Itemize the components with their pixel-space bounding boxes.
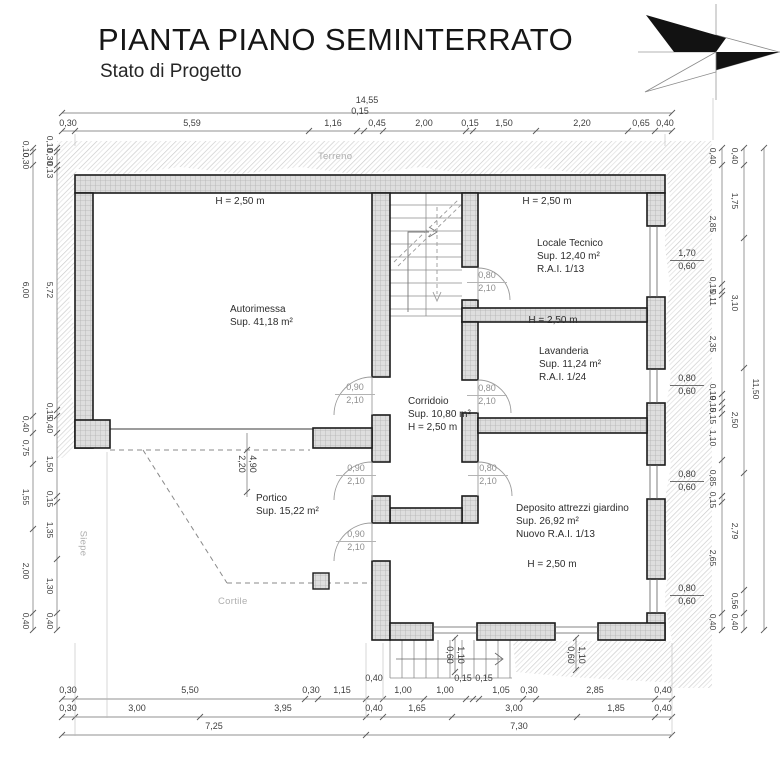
dim-label: 0,40 [708, 609, 718, 635]
window-label-rotated: 1,100,60 [565, 639, 587, 671]
door-label: 0,902,10 [336, 463, 376, 487]
dim-label: 5,50 [173, 685, 207, 695]
dim-label: 14,55 [350, 95, 384, 105]
dim-label: 0,40 [45, 608, 55, 634]
locale-tecnico-label: Locale Tecnico Sup. 12,40 m² R.A.I. 1/13 [537, 237, 603, 276]
dim-label: 3,10 [730, 290, 740, 316]
dim-label: 2,50 [730, 407, 740, 433]
dim-label: 0,11 [708, 285, 718, 311]
dim-label: 2,35 [708, 331, 718, 357]
siepe-label: Siepe [77, 531, 88, 557]
dim-label: 1,85 [599, 703, 633, 713]
dim-label: 2,65 [708, 545, 718, 571]
dim-label: 5,59 [175, 118, 209, 128]
dim-label: 1,55 [21, 484, 31, 510]
room-area: Sup. 12,40 m² [537, 250, 603, 263]
room-rai: R.A.I. 1/24 [539, 371, 601, 384]
floor-plan-drawing [0, 0, 780, 780]
room-area: Sup. 10,80 m² [408, 408, 471, 421]
dim-label: 1,65 [400, 703, 434, 713]
window-label: 0,800,60 [670, 373, 704, 397]
locale-tecnico-height-label: H = 2,50 m [497, 195, 597, 208]
dim-label: 0,40 [648, 118, 682, 128]
dim-label: 0,40 [646, 703, 680, 713]
door-label: 0,802,10 [467, 383, 507, 407]
room-name: Autorimessa [230, 303, 293, 316]
dim-label: 3,00 [120, 703, 154, 713]
dim-label: 2,00 [407, 118, 441, 128]
dim-label: 1,35 [45, 517, 55, 543]
dim-label: 2,00 [21, 558, 31, 584]
deposito-height-label: H = 2,50 m [502, 558, 602, 571]
room-rai: R.A.I. 1/13 [537, 263, 603, 276]
dim-label: 0,40 [646, 685, 680, 695]
dim-label: 0,45 [360, 118, 394, 128]
dim-label: 0,40 [357, 703, 391, 713]
dim-label: 1,50 [45, 451, 55, 477]
dim-label: 1,16 [316, 118, 350, 128]
portico-dim-rotated: 4,902,20 [236, 448, 258, 480]
dim-label: 5,72 [45, 277, 55, 303]
dim-label: 0,30 [51, 703, 85, 713]
portico-label: Portico Sup. 15,22 m² [256, 492, 319, 518]
dim-label: 6,00 [21, 277, 31, 303]
dim-label: 1,00 [428, 685, 462, 695]
window-label: 0,800,60 [670, 469, 704, 493]
dim-label: 1,75 [730, 188, 740, 214]
room-name: Portico [256, 492, 319, 505]
room-height: H = 2,50 m [408, 421, 471, 434]
dim-label: 1,10 [708, 425, 718, 451]
dim-label: 0,40 [730, 143, 740, 169]
dim-label: 2,20 [565, 118, 599, 128]
lavanderia-label: Lavanderia Sup. 11,24 m² R.A.I. 1/24 [539, 345, 601, 384]
window-label-rotated: 1,100,60 [444, 639, 466, 671]
page-subtitle: Stato di Progetto [100, 61, 242, 83]
dim-label: 0,40 [730, 609, 740, 635]
dim-label: 0,40 [21, 608, 31, 634]
room-name: Lavanderia [539, 345, 601, 358]
dim-label: 2,79 [730, 518, 740, 544]
dim-label: 0,13 [45, 157, 55, 183]
dim-label: 2,85 [578, 685, 612, 695]
door-label: 0,802,10 [468, 463, 508, 487]
dim-label: 0,40 [708, 143, 718, 169]
door-label: 0,902,10 [335, 382, 375, 406]
door-label: 0,802,10 [467, 270, 507, 294]
dim-label: 0,30 [512, 685, 546, 695]
room-name: Corridoio [408, 395, 471, 408]
dim-label: 0,30 [21, 148, 31, 174]
dim-label: 1,15 [325, 685, 359, 695]
corridoio-label: Corridoio Sup. 10,80 m² H = 2,50 m [408, 395, 471, 434]
room-name: Locale Tecnico [537, 237, 603, 250]
room-area: Sup. 41,18 m² [230, 316, 293, 329]
autorimessa-height-label: H = 2,50 m [190, 195, 290, 208]
dim-label: 0,15 [708, 487, 718, 513]
dim-label: 3,00 [497, 703, 531, 713]
page-title: PIANTA PIANO SEMINTERRATO [98, 22, 573, 58]
dim-label: 0,15 [467, 673, 501, 683]
dim-label: 0,15 [453, 118, 487, 128]
dim-label: 0,15 [343, 106, 377, 116]
terreno-label: Terreno [318, 151, 352, 162]
dim-label: 7,25 [197, 721, 231, 731]
dim-label: 3,95 [266, 703, 300, 713]
deposito-label: Deposito attrezzi giardino Sup. 26,92 m²… [516, 502, 629, 541]
dim-label: 7,30 [502, 721, 536, 731]
dim-label: 1,00 [386, 685, 420, 695]
window-label: 0,800,60 [670, 583, 704, 607]
cortile-label: Cortile [218, 596, 248, 607]
dim-label: 1,30 [45, 573, 55, 599]
autorimessa-label: Autorimessa Sup. 41,18 m² [230, 303, 293, 329]
dim-label: 11,50 [751, 376, 761, 402]
room-name: Deposito attrezzi giardino [516, 502, 629, 515]
dim-label: 0,75 [21, 435, 31, 461]
dim-label: 0,30 [294, 685, 328, 695]
dim-label: 0,15 [45, 486, 55, 512]
dim-label: 0,40 [357, 673, 391, 683]
floor-plan-sheet: PIANTA PIANO SEMINTERRATO Stato di Proge… [0, 0, 780, 780]
dim-label: 0,30 [51, 685, 85, 695]
room-area: Sup. 11,24 m² [539, 358, 601, 371]
door-label: 0,902,10 [336, 529, 376, 553]
room-area: Sup. 26,92 m² [516, 515, 629, 528]
dim-label: 2,85 [708, 211, 718, 237]
portico-pillar [313, 573, 329, 589]
window-label: 1,700,60 [670, 248, 704, 272]
lavanderia-height-label: H = 2,50 m [503, 314, 603, 327]
north-arrow-icon [638, 4, 780, 100]
room-area: Sup. 15,22 m² [256, 505, 319, 518]
dim-label: 1,50 [487, 118, 521, 128]
room-rai: Nuovo R.A.I. 1/13 [516, 528, 629, 541]
dim-label: 0,40 [45, 412, 55, 438]
dim-label: 0,30 [51, 118, 85, 128]
dim-label: 0,40 [21, 411, 31, 437]
